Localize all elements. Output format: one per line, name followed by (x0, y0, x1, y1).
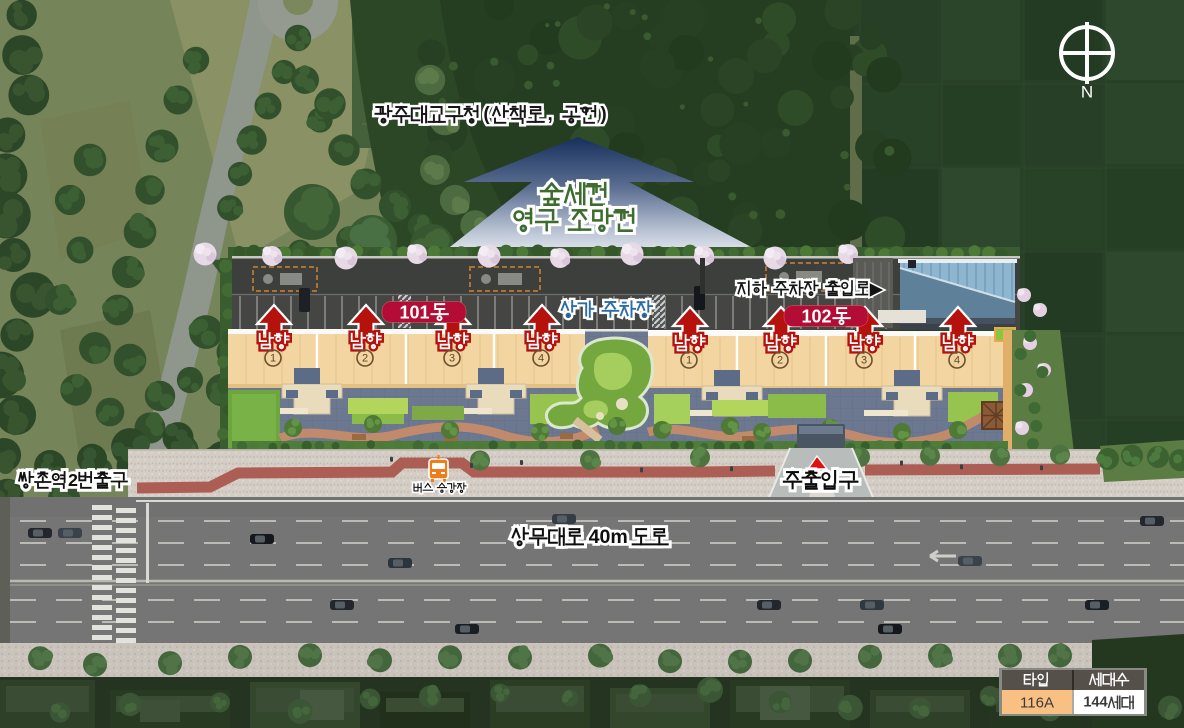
svg-text:144: 144 (1083, 695, 1108, 711)
svg-text:4: 4 (954, 355, 960, 367)
svg-text:2: 2 (362, 353, 368, 365)
svg-text:,: , (547, 104, 552, 125)
svg-text:3: 3 (449, 353, 455, 365)
svg-text:(: ( (483, 104, 490, 125)
svg-text:2: 2 (777, 355, 783, 367)
svg-text:40m: 40m (589, 526, 628, 548)
svg-text:N: N (1081, 83, 1093, 102)
svg-text:4: 4 (538, 353, 544, 365)
svg-text:116A: 116A (1020, 695, 1054, 712)
svg-text:101: 101 (399, 303, 429, 323)
svg-text:): ) (600, 104, 606, 125)
svg-text:2: 2 (68, 470, 78, 490)
svg-text:102: 102 (801, 307, 831, 327)
svg-text:1: 1 (270, 353, 276, 365)
svg-text:3: 3 (861, 355, 867, 367)
svg-text:1: 1 (686, 355, 692, 367)
